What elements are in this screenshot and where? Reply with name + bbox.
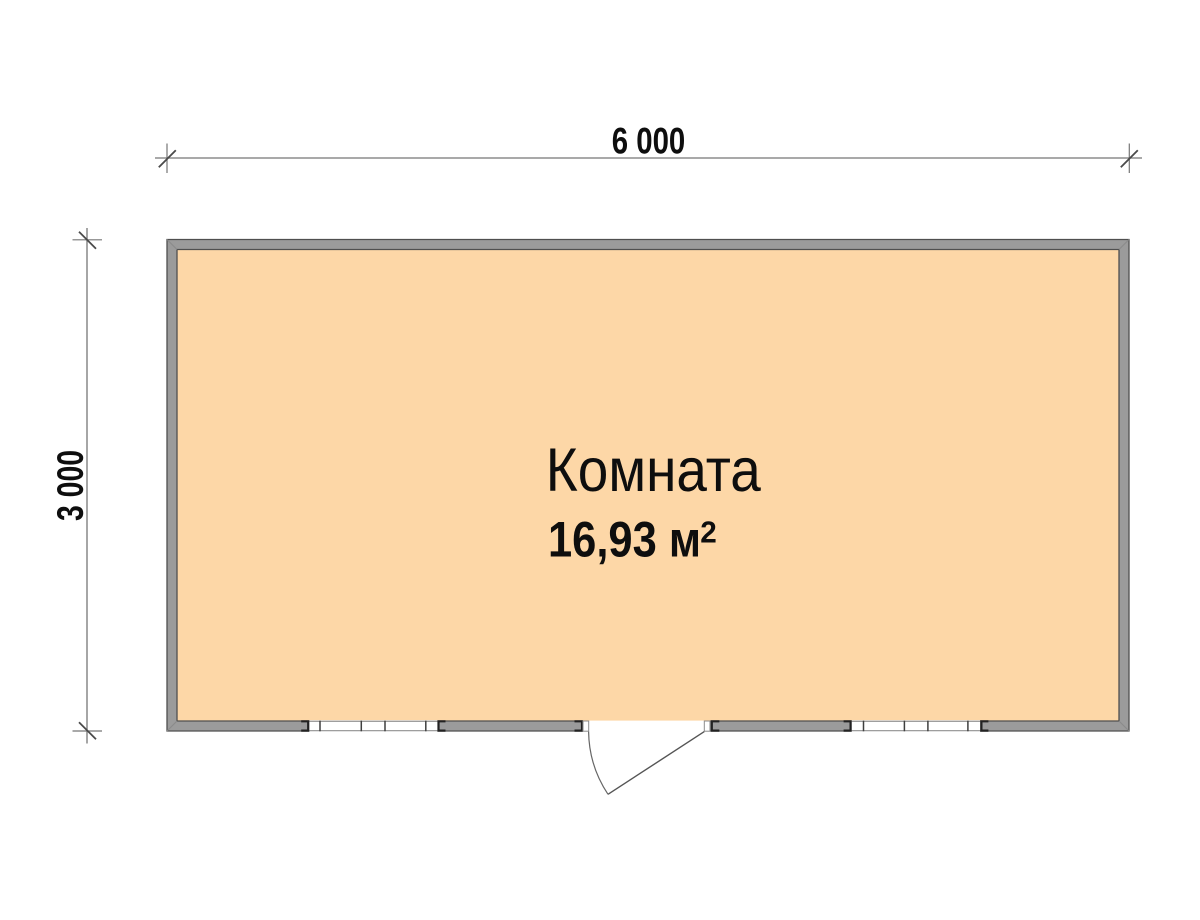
svg-text:16,93 м: 16,93 м <box>548 511 701 567</box>
svg-text:3 000: 3 000 <box>50 450 91 521</box>
svg-text:2: 2 <box>700 515 717 550</box>
svg-text:Комната: Комната <box>546 436 762 505</box>
svg-text:6 000: 6 000 <box>612 121 686 162</box>
